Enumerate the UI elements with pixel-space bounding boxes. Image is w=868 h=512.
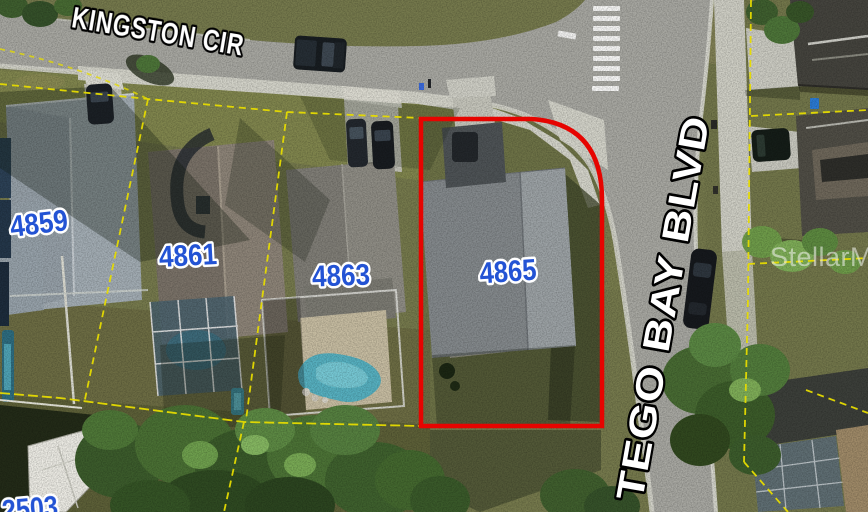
parcel-label-2503-partial: 2503 [1,490,60,512]
parcel-label-4859: 4859 [8,204,70,244]
aerial-map-image: KINGSTON CIR TEGO BAY BLVD 4859 4861 486… [0,0,868,512]
parcel-label-4865: 4865 [478,254,537,291]
parcel-label-4861: 4861 [158,238,218,274]
stellar-mls-watermark: StellarMLS [770,242,868,272]
photo-grain [0,0,868,512]
parcel-label-4863: 4863 [311,258,370,293]
aerial-map-canvas: KINGSTON CIR TEGO BAY BLVD 4859 4861 486… [0,0,868,512]
